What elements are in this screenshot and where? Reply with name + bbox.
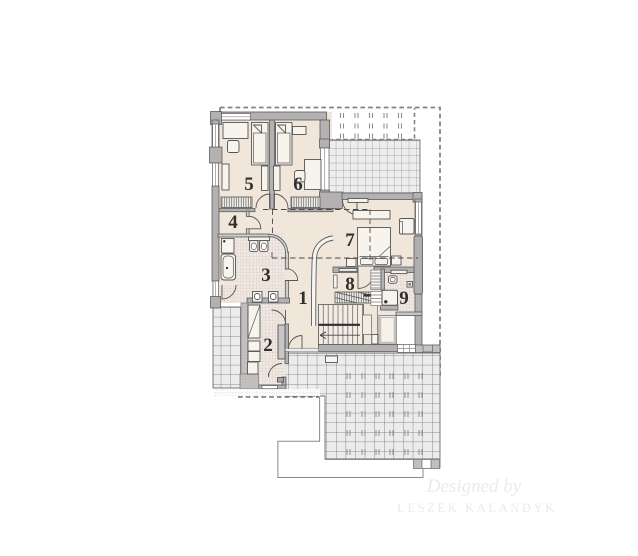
- svg-text:4: 4: [228, 212, 238, 233]
- svg-text:7: 7: [345, 230, 355, 251]
- svg-text:1: 1: [298, 288, 308, 309]
- svg-text:Designed by: Designed by: [426, 476, 522, 497]
- svg-text:6: 6: [293, 174, 303, 195]
- svg-text:3: 3: [261, 265, 271, 286]
- svg-text:2: 2: [263, 335, 273, 356]
- svg-text:LESZEK KALANDYK: LESZEK KALANDYK: [397, 501, 556, 515]
- svg-text:9: 9: [399, 288, 409, 309]
- svg-text:5: 5: [244, 174, 254, 195]
- svg-text:8: 8: [345, 274, 355, 295]
